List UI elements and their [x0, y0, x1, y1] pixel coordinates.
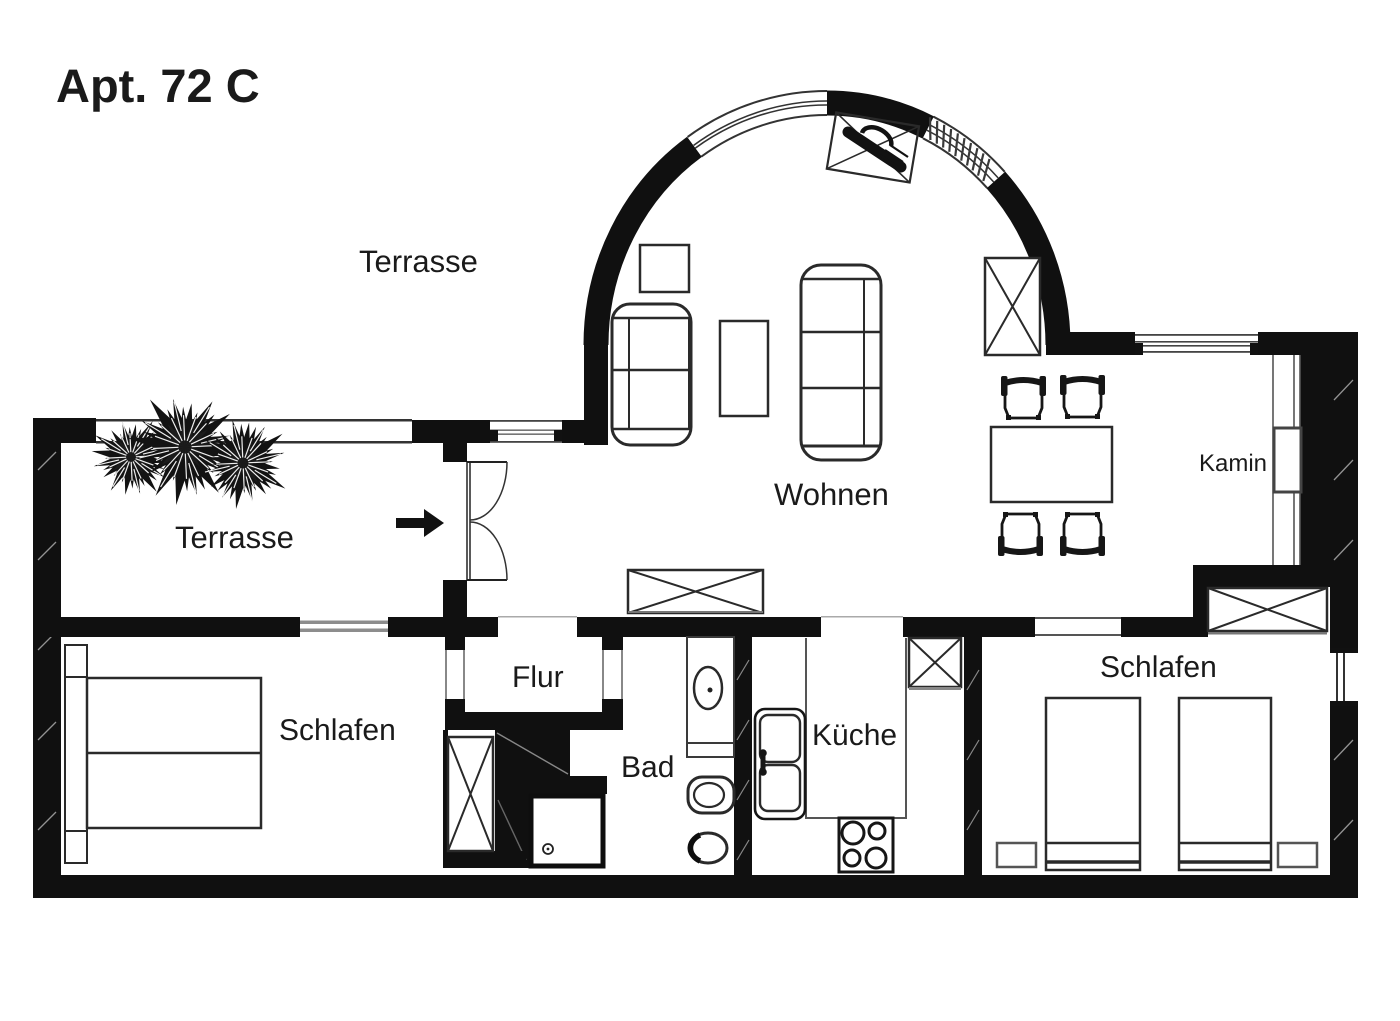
svg-text:Terrasse: Terrasse [175, 520, 294, 555]
svg-text:Bad: Bad [621, 751, 674, 784]
svg-text:Terrasse: Terrasse [359, 244, 478, 279]
svg-text:Schlafen: Schlafen [279, 714, 396, 747]
svg-text:Kamin: Kamin [1199, 450, 1267, 477]
svg-text:Flur: Flur [512, 661, 564, 694]
svg-text:Küche: Küche [812, 719, 897, 752]
svg-text:Schlafen: Schlafen [1100, 651, 1217, 684]
svg-text:Wohnen: Wohnen [774, 477, 889, 512]
svg-text:Apt. 72 C: Apt. 72 C [56, 59, 260, 112]
